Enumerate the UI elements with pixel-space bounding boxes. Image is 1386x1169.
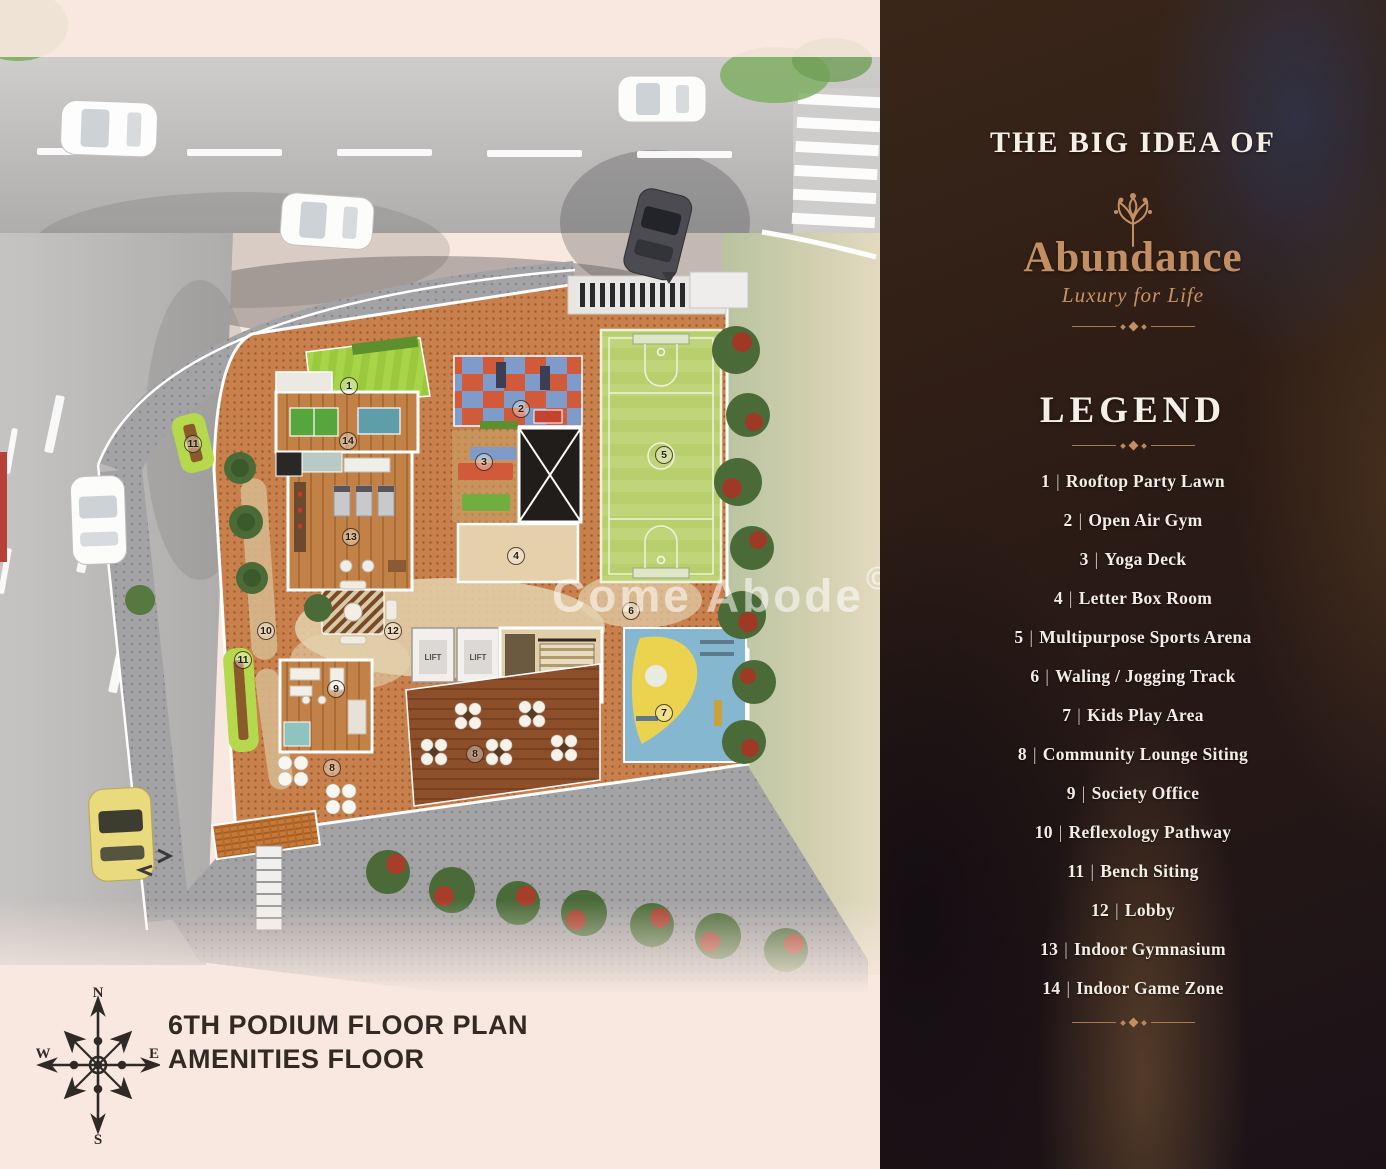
legend-item-12: 12|Lobby — [880, 902, 1386, 919]
legend-item-label: Community Lounge Siting — [1043, 744, 1248, 764]
legend-item-number: 2 — [1064, 510, 1073, 530]
legend-item-number: 4 — [1054, 588, 1063, 608]
society-office — [280, 660, 372, 752]
legend-item-separator: | — [1077, 705, 1081, 725]
legend-item-separator: | — [1066, 978, 1070, 998]
legend-item-number: 5 — [1014, 627, 1023, 647]
legend-item-number: 9 — [1067, 783, 1076, 803]
legend-item-label: Multipurpose Sports Arena — [1039, 627, 1251, 647]
red-vehicle-sliver — [0, 452, 7, 562]
legend-item-number: 10 — [1035, 822, 1053, 842]
legend-item-label: Society Office — [1092, 783, 1200, 803]
open-air-gym — [454, 356, 582, 429]
compass-west-label: W — [36, 1046, 51, 1062]
legend-item-13: 13|Indoor Gymnasium — [880, 941, 1386, 958]
brand-name: Abundance — [880, 236, 1386, 280]
legend-item-label: Rooftop Party Lawn — [1066, 471, 1225, 491]
legend-item-2: 2|Open Air Gym — [880, 512, 1386, 529]
copyright-icon: © — [866, 560, 880, 596]
legend-item-number: 3 — [1080, 549, 1089, 569]
legend-item-label: Yoga Deck — [1104, 549, 1186, 569]
zebra-crossing — [792, 88, 880, 234]
legend-item-label: Lobby — [1125, 900, 1175, 920]
legend-item-10: 10|Reflexology Pathway — [880, 824, 1386, 841]
legend-item-label: Open Air Gym — [1088, 510, 1202, 530]
legend-item-number: 1 — [1041, 471, 1050, 491]
ornament-divider — [880, 1019, 1386, 1026]
compass-south-label: S — [94, 1132, 102, 1145]
plan-title-line1: 6TH PODIUM FLOOR PLAN — [168, 1008, 528, 1042]
legend-item-5: 5|Multipurpose Sports Arena — [880, 629, 1386, 646]
legend-item-4: 4|Letter Box Room — [880, 590, 1386, 607]
legend-item-separator: | — [1064, 939, 1068, 959]
compass-north-label: N — [93, 985, 104, 1001]
indoor-gymnasium — [276, 452, 412, 590]
legend-item-separator: | — [1029, 627, 1033, 647]
compass-rose: N S W E — [36, 985, 160, 1150]
legend-item-number: 6 — [1030, 666, 1039, 686]
legend-item-separator: | — [1090, 861, 1094, 881]
legend-item-3: 3|Yoga Deck — [880, 551, 1386, 568]
legend-item-number: 14 — [1042, 978, 1060, 998]
legend-item-6: 6|Waling / Jogging Track — [880, 668, 1386, 685]
legend-item-label: Indoor Game Zone — [1076, 978, 1223, 998]
ornament-divider — [880, 323, 1386, 330]
legend-title: LEGEND — [880, 392, 1386, 430]
legend-item-separator: | — [1033, 744, 1037, 764]
legend-item-label: Waling / Jogging Track — [1055, 666, 1236, 686]
legend-item-label: Kids Play Area — [1087, 705, 1204, 725]
lift-label: LIFT — [470, 653, 487, 662]
legend-list: 1|Rooftop Party Lawn2|Open Air Gym3|Yoga… — [880, 473, 1386, 997]
legend-item-separator: | — [1056, 471, 1060, 491]
legend-item-separator: | — [1115, 900, 1119, 920]
legend-item-separator: | — [1082, 783, 1086, 803]
panel-heading: THE BIG IDEA OF — [880, 126, 1386, 160]
legend-item-separator: | — [1069, 588, 1073, 608]
white-car — [618, 76, 706, 122]
ornament-divider — [880, 442, 1386, 449]
floor-plan-area: LIFT LIFT — [0, 0, 880, 1169]
white-car — [279, 192, 374, 250]
legend-item-number: 8 — [1018, 744, 1027, 764]
legend-item-11: 11|Bench Siting — [880, 863, 1386, 880]
yoga-deck — [452, 430, 520, 522]
legend-item-label: Reflexology Pathway — [1069, 822, 1232, 842]
compass-east-label: E — [149, 1046, 159, 1062]
white-car — [60, 100, 158, 157]
legend-item-separator: | — [1095, 549, 1099, 569]
legend-item-separator: | — [1059, 822, 1063, 842]
legend-item-label: Letter Box Room — [1079, 588, 1212, 608]
legend-item-number: 7 — [1062, 705, 1071, 725]
lift-label: LIFT — [425, 653, 442, 662]
brand-panel: THE BIG IDEA OF Abundance Luxury for Lif… — [880, 0, 1386, 1169]
legend-item-14: 14|Indoor Game Zone — [880, 980, 1386, 997]
legend-item-separator: | — [1045, 666, 1049, 686]
plan-title-line2: AMENITIES FLOOR — [168, 1042, 528, 1076]
legend-item-label: Bench Siting — [1100, 861, 1198, 881]
legend-item-8: 8|Community Lounge Siting — [880, 746, 1386, 763]
watermark: Come Abode© — [552, 566, 880, 622]
legend-item-number: 12 — [1091, 900, 1109, 920]
legend-item-9: 9|Society Office — [880, 785, 1386, 802]
legend-item-1: 1|Rooftop Party Lawn — [880, 473, 1386, 490]
plan-title: 6TH PODIUM FLOOR PLAN AMENITIES FLOOR — [168, 1008, 528, 1076]
legend-item-number: 13 — [1040, 939, 1058, 959]
watermark-text: Come Abode — [552, 569, 864, 621]
sports-arena — [601, 330, 721, 582]
brochure-page: LIFT LIFT — [0, 0, 1386, 1169]
legend-item-number: 11 — [1067, 861, 1084, 881]
legend-item-7: 7|Kids Play Area — [880, 707, 1386, 724]
legend-item-separator: | — [1079, 510, 1083, 530]
white-car — [70, 475, 127, 565]
service-shaft — [519, 428, 581, 522]
legend-item-label: Indoor Gymnasium — [1074, 939, 1226, 959]
brand-tagline: Luxury for Life — [880, 283, 1386, 307]
